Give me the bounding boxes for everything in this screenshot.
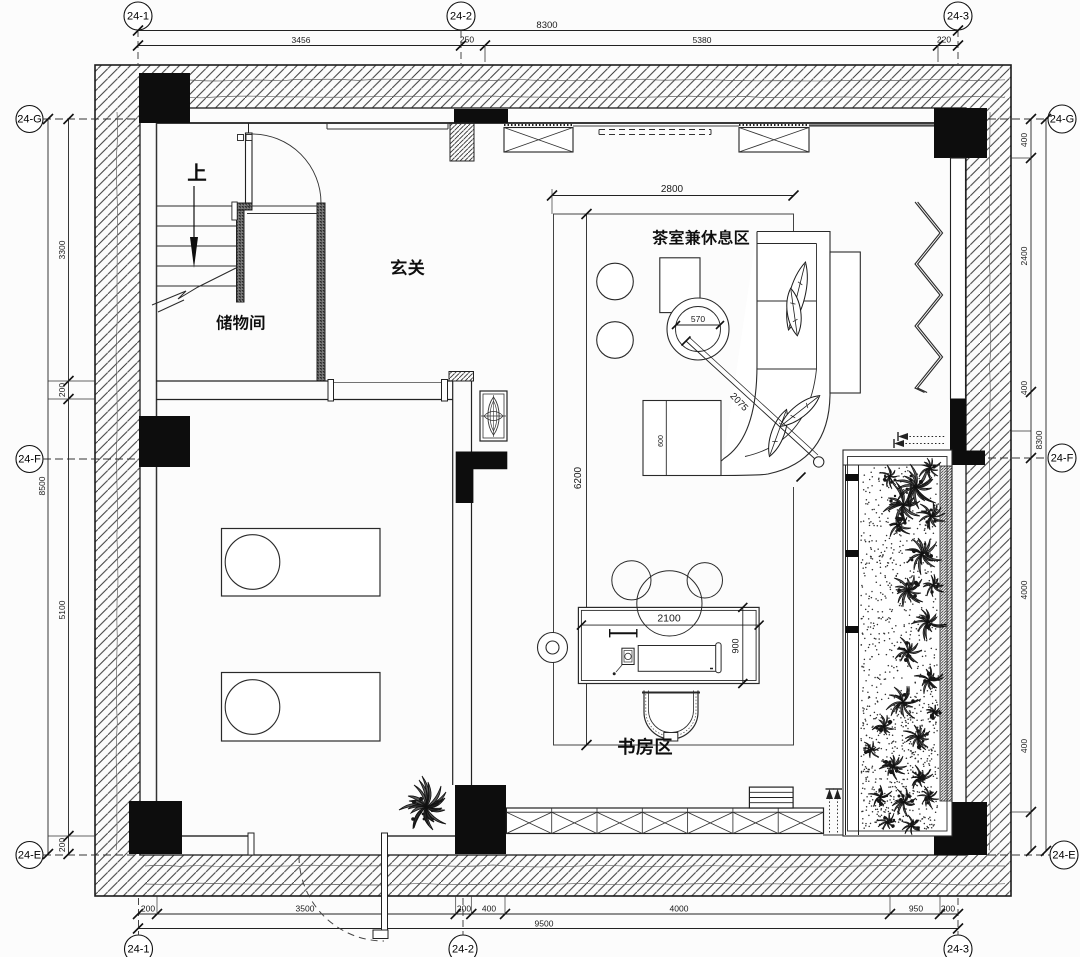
svg-text:600: 600 [658,435,665,447]
svg-text:200: 200 [57,838,67,852]
svg-text:24-F: 24-F [1051,453,1074,465]
svg-text:4000: 4000 [670,904,689,914]
svg-text:3456: 3456 [292,35,311,45]
svg-text:200: 200 [941,904,955,914]
svg-text:220: 220 [937,35,951,45]
svg-text:2800: 2800 [661,184,684,195]
svg-text:400: 400 [1019,133,1029,147]
svg-text:400: 400 [482,904,496,914]
svg-text:250: 250 [460,35,474,45]
svg-text:400: 400 [1019,381,1029,395]
svg-text:8300: 8300 [1034,430,1044,449]
svg-text:24-2: 24-2 [450,11,472,23]
svg-text:6200: 6200 [573,466,584,489]
svg-text:24-G: 24-G [17,114,41,126]
svg-text:5100: 5100 [57,600,67,619]
svg-text:200: 200 [141,904,155,914]
svg-text:9500: 9500 [535,919,554,929]
svg-text:2100: 2100 [657,613,681,625]
svg-text:24-E: 24-E [18,850,41,862]
svg-text:24-1: 24-1 [127,11,149,23]
svg-text:5380: 5380 [693,35,712,45]
svg-text:3300: 3300 [57,240,67,259]
svg-text:24-3: 24-3 [947,11,969,23]
svg-text:24-E: 24-E [1052,850,1075,862]
svg-text:24-1: 24-1 [127,944,149,956]
svg-text:4000: 4000 [1019,580,1029,599]
svg-text:24-2: 24-2 [452,944,474,956]
svg-text:200: 200 [457,904,471,914]
svg-text:950: 950 [909,904,923,914]
svg-text:8300: 8300 [536,20,557,31]
svg-text:24-F: 24-F [18,454,41,466]
svg-text:900: 900 [731,638,741,653]
svg-text:2400: 2400 [1019,246,1029,265]
svg-text:8500: 8500 [37,476,47,495]
svg-text:3500: 3500 [296,904,315,914]
svg-text:570: 570 [691,314,705,324]
svg-text:200: 200 [57,383,67,397]
svg-text:24-G: 24-G [1050,114,1074,126]
svg-text:400: 400 [1019,739,1029,753]
svg-text:24-3: 24-3 [947,944,969,956]
